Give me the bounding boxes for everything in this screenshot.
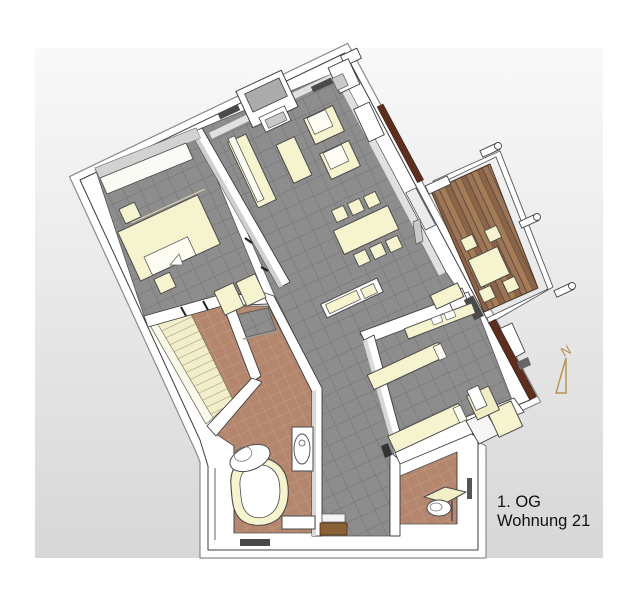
svg-text:Wohnung 21: Wohnung 21 [497, 512, 590, 530]
svg-text:1. OG: 1. OG [497, 493, 541, 511]
